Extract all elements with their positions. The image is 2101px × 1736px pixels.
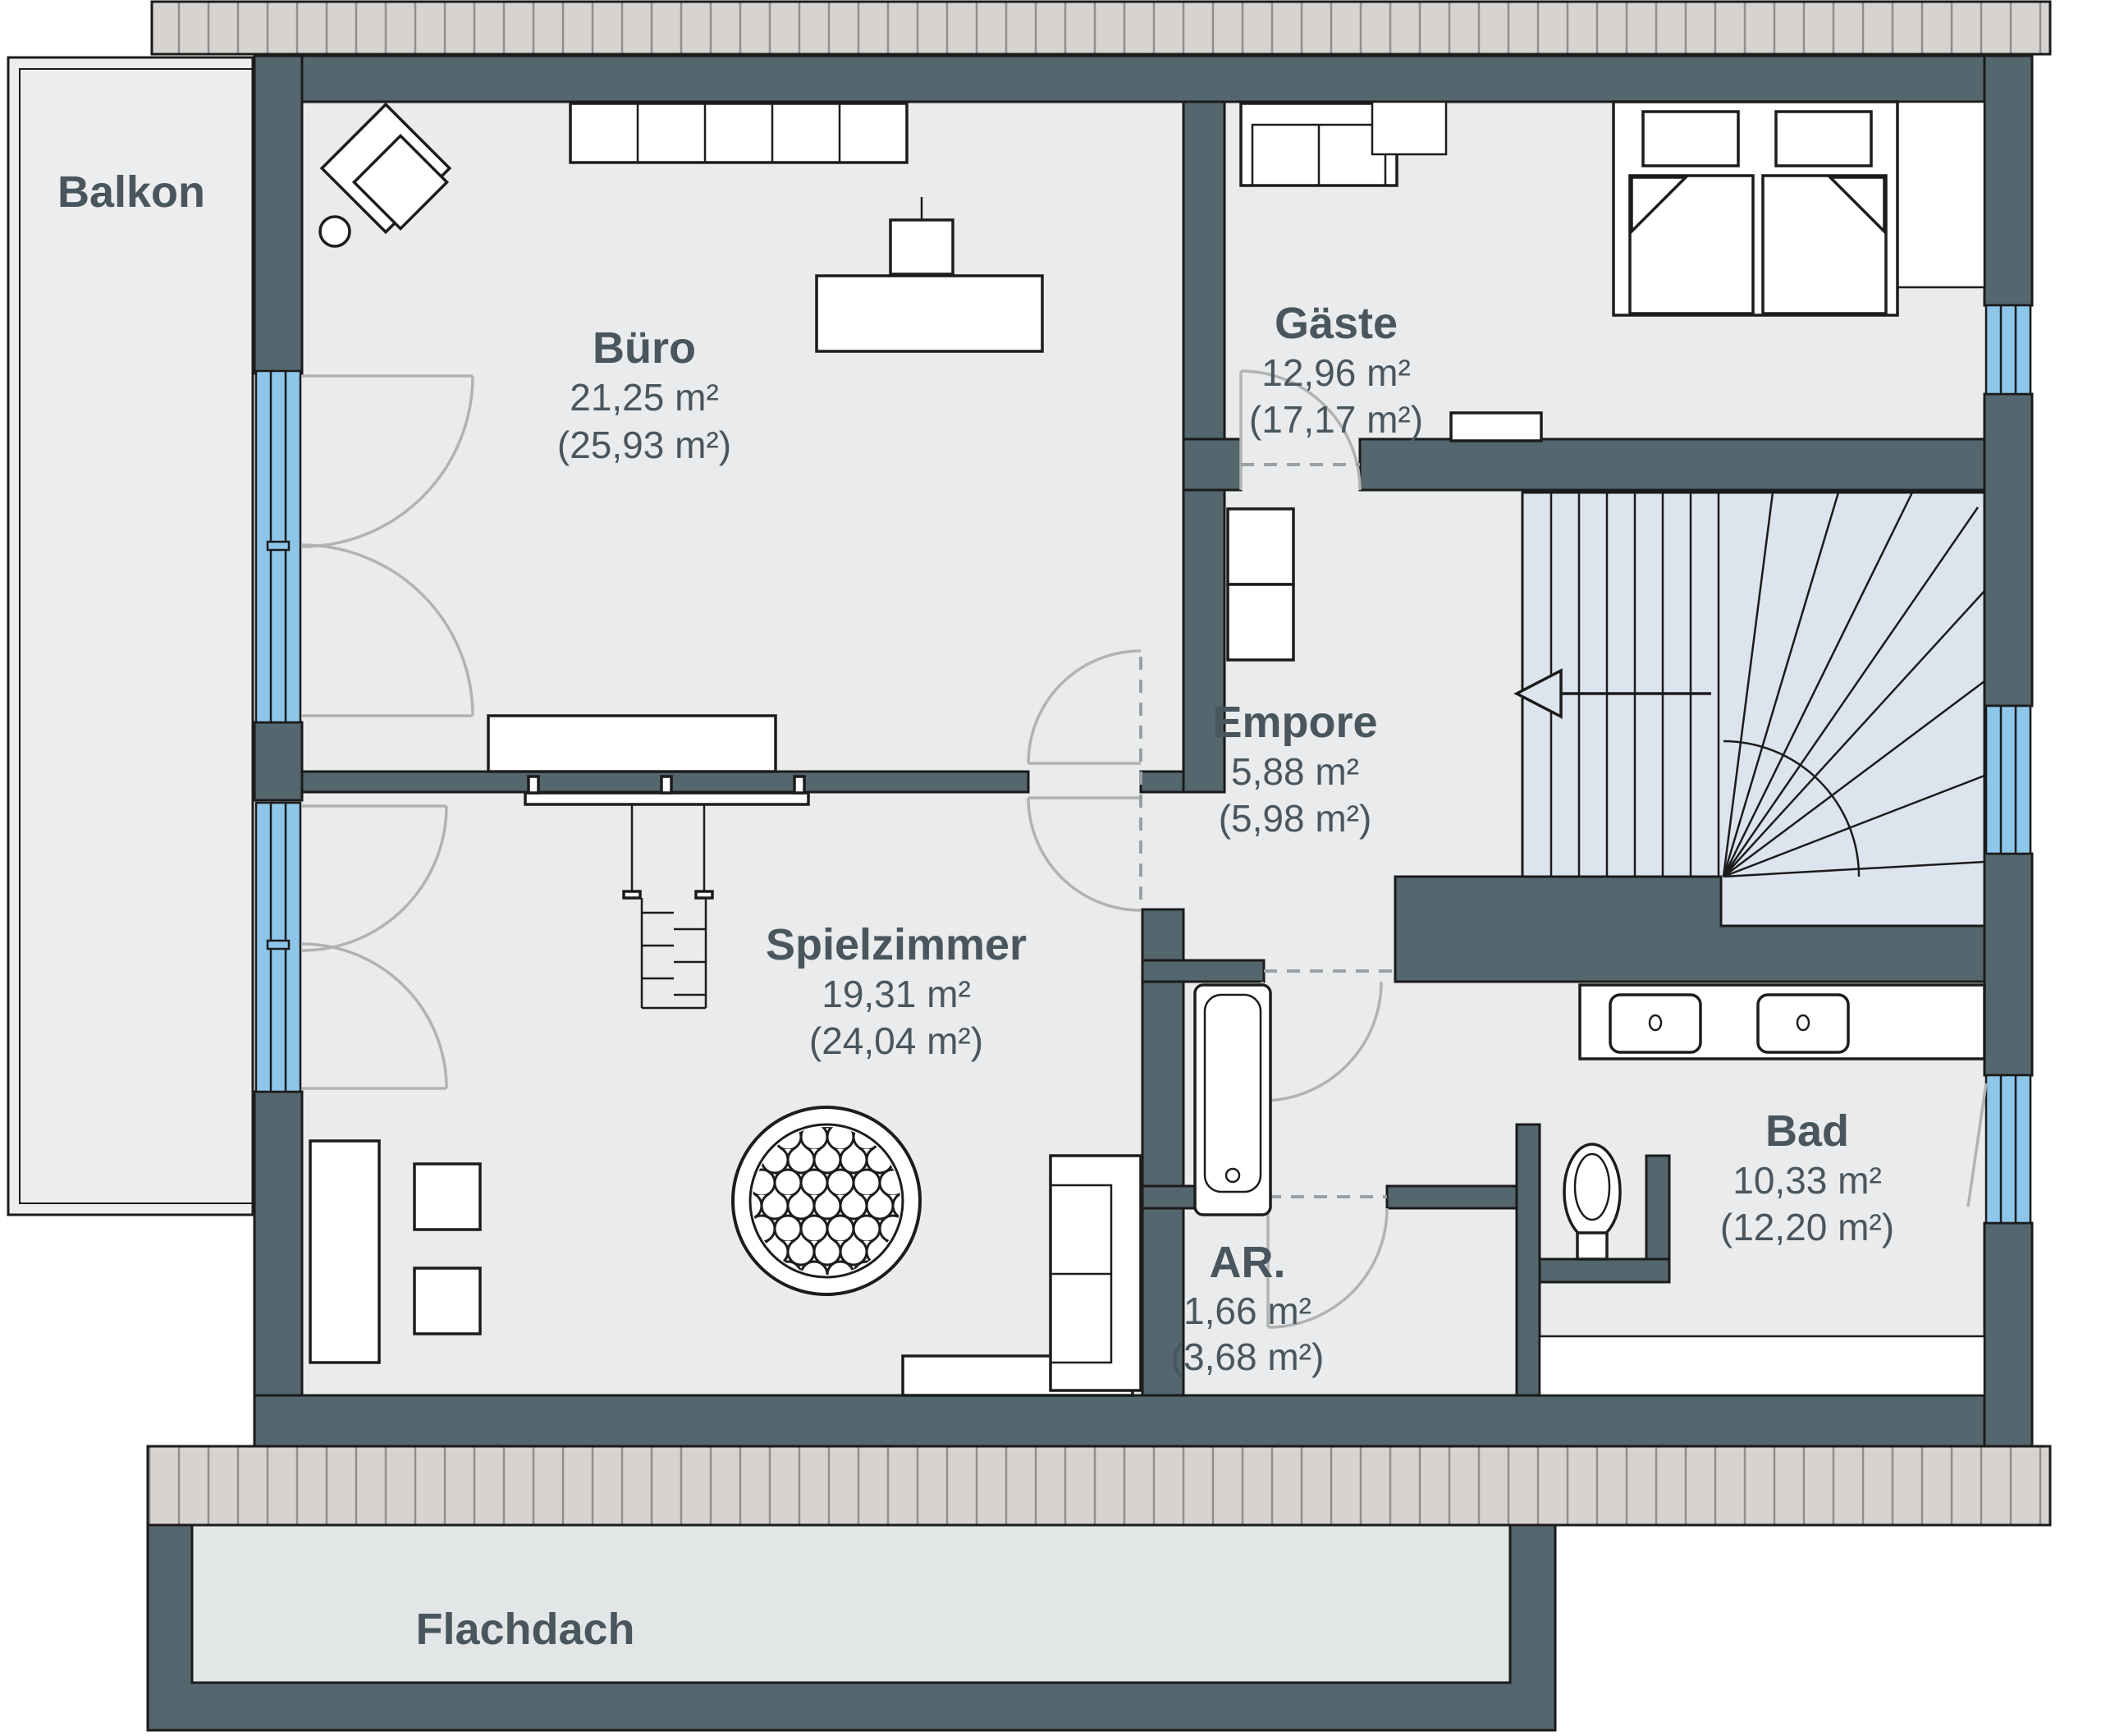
bathtub-icon bbox=[1195, 985, 1270, 1215]
wall-center-stub bbox=[1141, 772, 1183, 792]
wall-ar-north-right bbox=[1387, 1186, 1517, 1208]
balcony-door-buero bbox=[256, 371, 300, 722]
staircase bbox=[1517, 492, 1984, 926]
svg-text:12,96 m²: 12,96 m² bbox=[1261, 351, 1411, 394]
svg-text:10,33 m²: 10,33 m² bbox=[1733, 1159, 1882, 1202]
svg-text:AR.: AR. bbox=[1210, 1238, 1286, 1287]
svg-text:19,31 m²: 19,31 m² bbox=[822, 973, 971, 1015]
wall-right-3 bbox=[1984, 854, 2032, 1075]
knee-zone-bad bbox=[1540, 1336, 1984, 1395]
shelf-icon bbox=[570, 103, 907, 163]
cabinet-icon bbox=[1228, 509, 1293, 584]
wall-right-1 bbox=[1984, 56, 2032, 305]
sideboard-gaeste-icon bbox=[1451, 413, 1541, 441]
wall-left-lower bbox=[254, 1092, 302, 1446]
svg-text:(24,04 m²): (24,04 m²) bbox=[809, 1019, 983, 1062]
cabinet-icon bbox=[1228, 584, 1293, 660]
svg-text:(3,68 m²): (3,68 m²) bbox=[1171, 1335, 1325, 1378]
svg-text:Bad: Bad bbox=[1765, 1106, 1849, 1156]
balcony: Balkon bbox=[8, 57, 253, 1215]
wall-right-2 bbox=[1984, 394, 2032, 706]
svg-text:(12,20 m²): (12,20 m²) bbox=[1720, 1206, 1894, 1248]
wall-wc-niche-right bbox=[1646, 1156, 1669, 1259]
svg-text:Gäste: Gäste bbox=[1275, 299, 1398, 348]
room-label-gaeste: Gäste 12,96 m² (17,17 m²) bbox=[1249, 299, 1423, 441]
svg-text:(17,17 m²): (17,17 m²) bbox=[1249, 398, 1423, 441]
balcony-label: Balkon bbox=[57, 167, 205, 217]
double-bed-icon bbox=[1614, 102, 1897, 315]
wall-bottom bbox=[254, 1395, 2032, 1446]
sofa-spielzimmer-icon bbox=[1050, 1156, 1141, 1390]
svg-text:Spielzimmer: Spielzimmer bbox=[766, 920, 1027, 969]
ball-pit-icon bbox=[733, 1107, 920, 1294]
wall-gaeste-south-left bbox=[1183, 439, 1241, 490]
svg-text:Büro: Büro bbox=[593, 323, 696, 373]
wall-bad-north-stub bbox=[1142, 960, 1264, 982]
window-stairs bbox=[1986, 706, 2030, 854]
sideboard-buero-icon bbox=[488, 716, 776, 772]
wall-left-upper bbox=[254, 56, 302, 373]
svg-text:5,88 m²: 5,88 m² bbox=[1231, 750, 1359, 793]
svg-text:(5,98 m²): (5,98 m²) bbox=[1219, 797, 1372, 840]
window-gaeste bbox=[1986, 305, 2030, 394]
wall-gaeste-south-right bbox=[1360, 439, 1984, 490]
wall-wc-niche-bottom bbox=[1540, 1259, 1669, 1282]
room-label-empore: Empore 5,88 m² (5,98 m²) bbox=[1212, 698, 1377, 840]
svg-text:1,66 m²: 1,66 m² bbox=[1183, 1289, 1311, 1332]
wall-top bbox=[254, 56, 2032, 102]
roof-eaves-bottom bbox=[148, 1446, 2050, 1525]
wall-ar-east bbox=[1517, 1125, 1540, 1395]
wall-left-middle bbox=[254, 722, 302, 800]
floor-plan: Flachdach Balkon bbox=[0, 0, 2101, 1736]
nightstand-icon bbox=[1372, 102, 1446, 154]
svg-text:(25,93 m²): (25,93 m²) bbox=[557, 424, 731, 466]
double-washbasin-icon bbox=[1580, 985, 1984, 1059]
flat-roof: Flachdach bbox=[148, 1525, 1555, 1730]
svg-text:Empore: Empore bbox=[1212, 698, 1377, 747]
balcony-door-spielzimmer bbox=[256, 803, 300, 1092]
empore-furniture bbox=[1228, 509, 1293, 660]
flat-roof-label: Flachdach bbox=[415, 1605, 634, 1654]
knee-zone-gaeste bbox=[1897, 102, 1984, 287]
svg-text:21,25 m²: 21,25 m² bbox=[570, 376, 719, 419]
roof-eaves-top bbox=[152, 2, 2050, 54]
wall-right-4 bbox=[1984, 1223, 2032, 1446]
